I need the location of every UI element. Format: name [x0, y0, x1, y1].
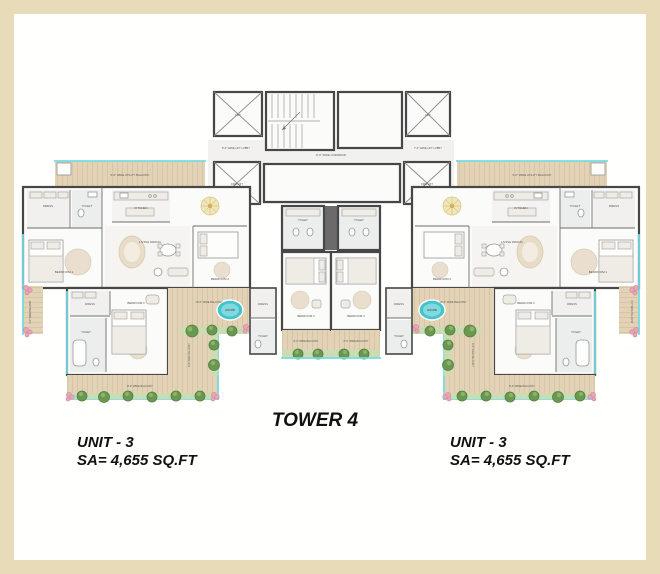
room-label: 8'-0" WIDE CORRIDOR: [316, 153, 346, 157]
room-label: 5'-0" WIDE UTILITY BALCONY: [111, 173, 150, 177]
room-label: 8'-0" WIDE BALCONY: [188, 343, 191, 367]
room-label: BEDROOM 4: [347, 314, 365, 318]
unit-left-area: SA= 4,655 SQ.FT: [77, 452, 198, 469]
room-label: BEDROOM 2: [211, 277, 229, 281]
room-label: 6'-0" WIDE BALCONY: [630, 301, 633, 324]
room-label: LIVING DINING: [501, 240, 523, 244]
floor-plan-svg: 5'-0" WIDE UTILITY BALCONY5'-0" WIDE UTI…: [0, 0, 660, 574]
room-label: TOILET: [354, 218, 364, 222]
staircase: [266, 92, 334, 150]
room-label: 7'-0" WIDE LIFT LOBBY: [414, 146, 442, 150]
room-label: DRESS: [258, 302, 268, 306]
room-label: DRESS: [567, 302, 577, 306]
room-label: TOILET: [298, 218, 308, 222]
room-label: DRESS: [394, 302, 404, 306]
room-label: 8'-0" WIDE BALCONY: [294, 340, 319, 343]
beige-border-frame: 5'-0" WIDE UTILITY BALCONY5'-0" WIDE UTI…: [0, 0, 660, 574]
room-label: 10'-0" WIDE BALCONY: [439, 300, 466, 304]
room-label: 8'-0" WIDE BALCONY: [471, 343, 474, 367]
room-label: LIVING DINING: [139, 240, 161, 244]
room-label: 6'-0" WIDE BALCONY: [29, 300, 32, 323]
room-label: LIFT: [425, 113, 431, 117]
room-label: BEDROOM 3: [127, 301, 145, 305]
room-label: KITCHEN: [134, 206, 147, 210]
room-label: BEDROOM 1: [55, 270, 74, 274]
room-label: TOILET: [570, 204, 581, 208]
room-label: 8'-0" WIDE LIFT LOBBY: [222, 146, 250, 150]
tower-title: TOWER 4: [272, 410, 359, 431]
room-label: BEDROOM 2: [433, 277, 451, 281]
room-label: TOILET: [394, 334, 404, 338]
room-label: TOILET: [82, 204, 93, 208]
room-label: DRESS: [609, 204, 619, 208]
room-label: 8'-0" WIDE BALCONY: [509, 384, 535, 388]
room-label: TOILET: [258, 334, 268, 338]
unit-right-name: UNIT - 3: [450, 434, 507, 451]
unit-left-name: UNIT - 3: [77, 434, 134, 451]
room-label: 5'-0" WIDE UTILITY BALCONY: [513, 173, 552, 177]
room-label: DRESS: [85, 302, 95, 306]
room-label: LIFT: [235, 113, 241, 117]
room-label: DRESS: [43, 204, 53, 208]
room-label: FIRE LIFT: [421, 182, 433, 186]
room-label: FIRE LIFT: [231, 182, 243, 186]
room-label: TOILET: [81, 330, 91, 334]
room-label: BEDROOM 4: [297, 314, 315, 318]
room-label: BEDROOM 3: [517, 301, 535, 305]
room-label: JACUZZI: [225, 309, 235, 312]
unit-right-area: SA= 4,655 SQ.FT: [450, 452, 571, 469]
room-label: 8'-0" WIDE BALCONY: [127, 384, 153, 388]
room-label: JACUZZI: [427, 309, 437, 312]
room-label: BEDROOM 1: [589, 270, 608, 274]
room-label: 10'-0" WIDE BALCONY: [195, 300, 222, 304]
room-label: TOILET: [571, 330, 581, 334]
room-label: KITCHEN: [514, 206, 527, 210]
room-label: 8'-0" WIDE BALCONY: [344, 340, 369, 343]
duct-shaft: [324, 206, 338, 250]
